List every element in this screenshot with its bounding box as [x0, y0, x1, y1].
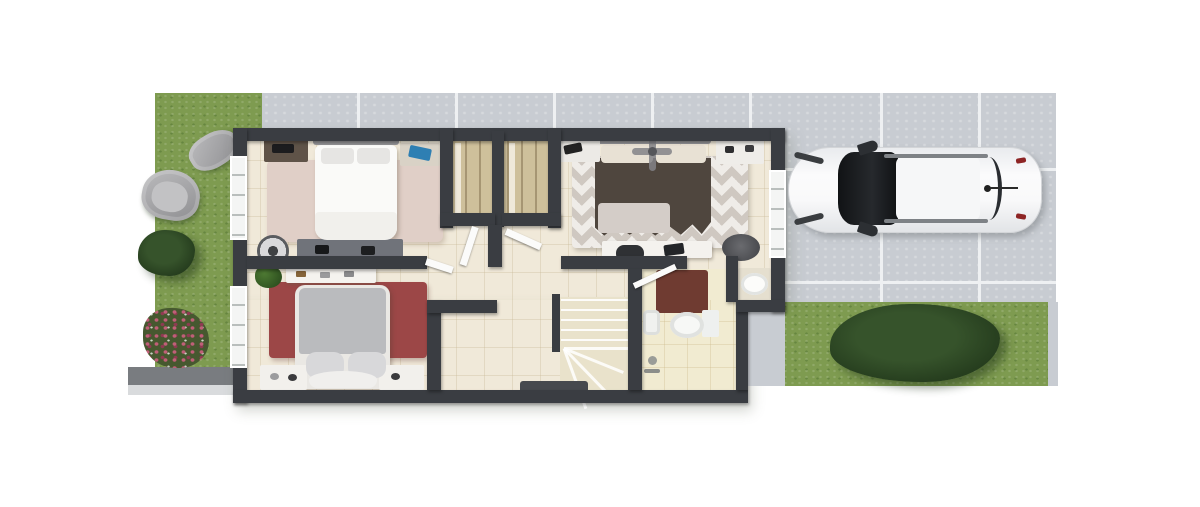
- wall-exterior-bottom: [233, 390, 748, 403]
- wall-exterior-top: [233, 128, 785, 141]
- bidet: [643, 310, 660, 335]
- toilet: [670, 312, 704, 338]
- bedroom2-window: [230, 286, 247, 368]
- car-side-window-bottom: [884, 219, 988, 223]
- stair-handrail: [552, 294, 560, 352]
- ceiling-fan-hub: [648, 147, 657, 156]
- wall-ensuite-stub: [726, 256, 738, 302]
- bathroom-rug: [656, 270, 708, 313]
- bedroom1-pillow: [357, 148, 390, 164]
- patio-tiles: [262, 93, 785, 130]
- bedroom2-duvet: [299, 288, 386, 354]
- wall-bedroom2-stub: [427, 300, 497, 313]
- path-edge-tiles: [1048, 302, 1058, 386]
- wall-bathroom-right: [736, 300, 748, 390]
- garden-walkway: [128, 367, 235, 386]
- parked-car: [788, 147, 1040, 231]
- bedroom2-vanity: [286, 267, 376, 283]
- bedroom1-pillow: [321, 148, 354, 164]
- side-path-tiles: [748, 312, 785, 386]
- stair-treads: [561, 299, 628, 349]
- car-side-window-top: [884, 154, 988, 158]
- master-window: [769, 170, 786, 258]
- washbasin: [741, 273, 768, 295]
- stair-winder-step: [564, 347, 628, 350]
- bedroom1-blanket: [315, 212, 397, 240]
- closet-shelf: [455, 143, 461, 223]
- bedroom1-window: [230, 156, 247, 240]
- rear-shrub: [830, 304, 1000, 382]
- front-shrub: [138, 230, 195, 276]
- car-roof: [896, 156, 980, 221]
- wall-bathroom-jog: [736, 300, 785, 312]
- wall-closet-stub: [502, 213, 561, 226]
- floor-plan-render: [0, 0, 1200, 507]
- master-blanket: [598, 203, 670, 233]
- shower-bar: [644, 369, 660, 373]
- toilet-tank: [702, 310, 719, 337]
- bedroom2-footboard: [309, 371, 377, 388]
- master-nightstand-right: [716, 137, 764, 164]
- wall-closet-stub: [440, 213, 495, 226]
- wall-bedroom-divider: [247, 256, 427, 269]
- wall-hallway-stub: [488, 225, 502, 267]
- wall-bedroom2-right: [427, 300, 441, 390]
- car-antenna: [984, 185, 991, 192]
- bedroom2-nightstand-left: [260, 365, 307, 390]
- garden-walkway-edge: [128, 385, 242, 395]
- car-windshield: [838, 152, 900, 225]
- shower-drain: [648, 356, 657, 365]
- closet-shelf: [509, 143, 515, 223]
